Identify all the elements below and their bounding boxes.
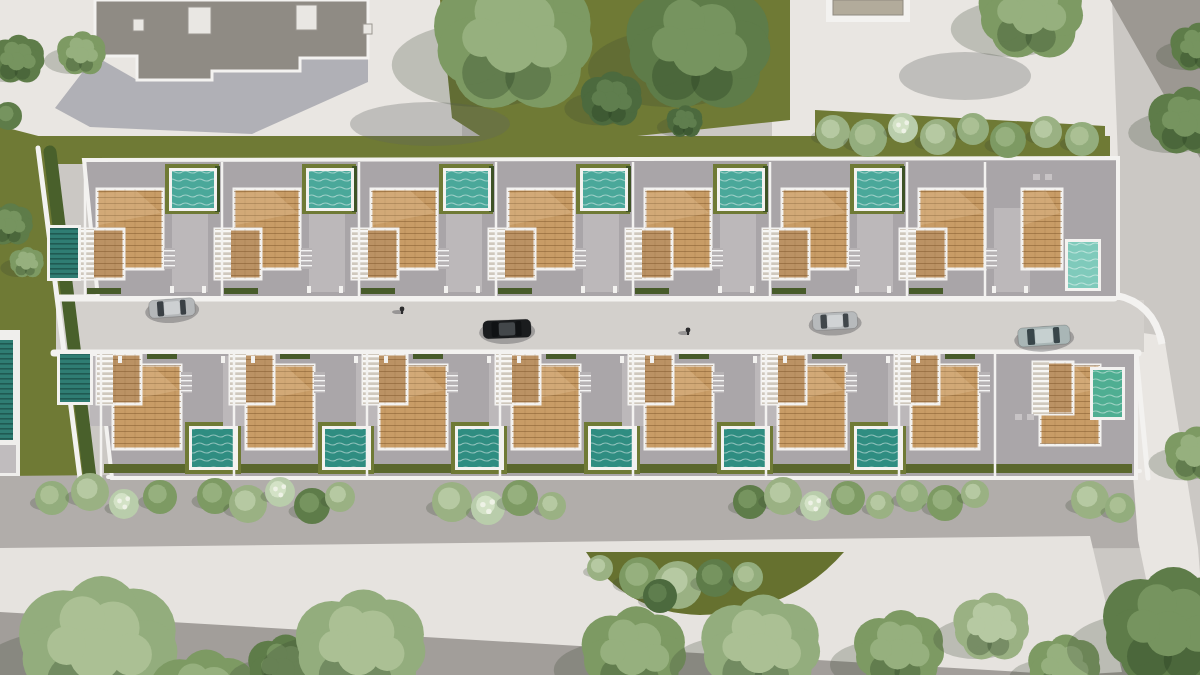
bush-foliage-light <box>625 563 648 586</box>
street-hedge <box>945 354 975 359</box>
bush-foliage-light <box>901 484 919 502</box>
bush-foliage-light <box>965 484 980 499</box>
deck-stairs-treads <box>314 372 325 393</box>
bush-foliage-light <box>77 478 98 499</box>
bush-blossom <box>281 484 286 489</box>
kiosk-roof <box>833 0 903 15</box>
bush-foliage-light <box>738 566 755 583</box>
tree <box>0 35 44 83</box>
gate-pillar <box>487 356 491 363</box>
driveway <box>720 208 756 292</box>
bush-foliage-light <box>1070 127 1089 146</box>
bush-blossom <box>273 487 278 492</box>
swimming-pool-ripples <box>446 171 488 208</box>
bush-blossom <box>480 502 485 507</box>
gate-pillar <box>354 356 358 363</box>
left-house-louver-slats <box>0 340 13 440</box>
bush-blossom <box>896 123 901 128</box>
swimming-pool-ripples <box>591 429 634 467</box>
gate-pillar <box>444 286 448 293</box>
lower-deck-pergola-slats <box>230 354 246 404</box>
gate-pillar <box>339 286 343 293</box>
tree-canopy-light <box>652 26 687 61</box>
car-roof <box>827 315 843 328</box>
gate-pillar <box>476 286 480 293</box>
gate-pillar <box>620 356 624 363</box>
region-middle-road <box>56 300 1144 352</box>
bush-foliage-light <box>438 487 460 509</box>
car-windshield <box>491 322 498 337</box>
car-windshield <box>1027 329 1035 345</box>
pedestrian-legs <box>401 309 403 314</box>
bush-foliage-light <box>1077 486 1098 507</box>
patio-furniture <box>1045 174 1052 180</box>
deck-stairs-treads <box>181 372 192 393</box>
car-rear-window <box>843 313 849 327</box>
bush-foliage-light <box>542 496 557 511</box>
bush-foliage-light <box>648 584 667 603</box>
deck-stairs-treads <box>438 248 449 269</box>
residential-site-plan-rendering <box>0 0 1200 675</box>
bush-foliage-light <box>1035 120 1053 138</box>
swimming-pool-ripples <box>309 171 351 208</box>
deck-stairs-treads <box>447 372 458 393</box>
street-hedge <box>498 288 532 294</box>
driveway <box>172 208 208 292</box>
bush-blossom <box>125 496 130 501</box>
tree-canopy-light <box>967 617 985 635</box>
swimming-pool-ripples <box>172 171 214 208</box>
tree-canopy-light <box>600 639 626 665</box>
bush-foliage-light <box>507 485 527 505</box>
bush-foliage-light <box>40 486 59 505</box>
bush-foliage-light <box>870 495 885 510</box>
scene-root <box>0 0 1200 675</box>
bush-foliage-light <box>1110 497 1127 514</box>
bush-foliage-light <box>836 486 855 505</box>
bush-foliage-light <box>330 486 347 503</box>
bush-blossom <box>808 501 813 506</box>
rooftop-unit <box>133 19 144 31</box>
lower-deck-pergola-slats <box>895 354 911 404</box>
driveway <box>309 208 345 292</box>
bush-foliage-light <box>770 482 791 503</box>
bush-foliage-light <box>932 490 952 510</box>
tree-cast-shadow <box>899 52 1031 100</box>
street-hedge <box>361 288 395 294</box>
gate-pillar <box>202 286 206 293</box>
gate-pillar <box>307 286 311 293</box>
lower-deck-pergola-slats <box>629 354 645 404</box>
gate-pillar <box>750 286 754 293</box>
street-hedge <box>147 354 177 359</box>
lower-deck-pergola-slats <box>97 354 113 404</box>
tree-cast-shadow <box>350 102 510 146</box>
bush-foliage-light <box>821 120 840 139</box>
bush-foliage-light <box>855 124 876 145</box>
tree-canopy-light <box>47 626 86 665</box>
bush-foliage-light <box>202 483 222 503</box>
swimming-pool-ripples <box>325 429 368 467</box>
gate-pillar <box>887 286 891 293</box>
car-rear-window <box>1053 327 1060 343</box>
tree-canopy-light <box>0 52 13 65</box>
end-teal-pergola-louvers <box>60 354 90 402</box>
tree-canopy-light <box>1041 657 1059 675</box>
swimming-pool-ripples <box>1093 370 1122 417</box>
bush-blossom <box>278 493 283 498</box>
gate-pillar <box>221 356 225 363</box>
tree <box>1128 87 1200 154</box>
bush-foliage-light <box>148 485 167 504</box>
street-hedge <box>87 288 121 294</box>
street-hedge <box>280 354 310 359</box>
gate-pillar <box>855 286 859 293</box>
car-roof <box>164 301 181 315</box>
tree-canopy-light <box>16 258 24 266</box>
end-teal-pergola-louvers <box>50 228 78 278</box>
gate-pillar <box>916 356 920 363</box>
bush-foliage-light <box>702 564 723 585</box>
bush-foliage-light <box>925 124 945 144</box>
tree-canopy-light <box>462 18 501 57</box>
tree-canopy-light <box>870 639 892 661</box>
deck-stairs-treads <box>580 372 591 393</box>
bush-blossom <box>816 498 821 503</box>
deck-stairs-treads <box>712 248 723 269</box>
left-house-terrace <box>0 445 16 473</box>
gate-pillar <box>613 286 617 293</box>
rooftop-unit <box>188 7 211 34</box>
gate-pillar <box>783 356 787 363</box>
gate-pillar <box>886 356 890 363</box>
gate-pillar <box>118 356 122 363</box>
tree-canopy-light <box>1127 610 1160 643</box>
gate-pillar <box>251 356 255 363</box>
tree-canopy-light <box>1180 40 1193 53</box>
car-windshield <box>157 301 164 316</box>
bush-foliage-light <box>995 127 1015 147</box>
swimming-pool-ripples <box>724 429 767 467</box>
car-roof <box>499 322 516 336</box>
bush-foliage-light <box>591 559 605 573</box>
bush-blossom <box>117 499 122 504</box>
tree-canopy-light <box>319 631 351 663</box>
gate-pillar <box>384 356 388 363</box>
gate-pillar <box>992 286 996 293</box>
aerial-render-stage <box>0 0 1200 675</box>
gate-pillar <box>581 286 585 293</box>
street-hedge <box>546 354 576 359</box>
swimming-pool-ripples <box>857 429 900 467</box>
swimming-pool-ripples <box>857 171 899 208</box>
swimming-pool-ripples <box>1068 242 1098 288</box>
gate-pillar <box>718 286 722 293</box>
swimming-pool-ripples <box>720 171 762 208</box>
deck-stairs-treads <box>846 372 857 393</box>
bush-foliage-light <box>962 117 980 135</box>
lower-deck-pergola-slats <box>762 354 778 404</box>
lower-deck-pergola-slats <box>496 354 512 404</box>
deck-stairs-treads <box>979 372 990 393</box>
bush-blossom <box>813 507 818 512</box>
bush-blossom <box>486 509 491 514</box>
tree-canopy-light <box>673 117 682 126</box>
car-rear-window <box>515 321 521 336</box>
lower-deck-pergola-slats <box>363 354 379 404</box>
deck-stairs-treads <box>575 248 586 269</box>
tree-canopy-light <box>1162 111 1180 129</box>
driveway <box>446 208 482 292</box>
car-rear-window <box>180 300 187 315</box>
street-hedge <box>679 354 709 359</box>
bush-foliage-light <box>738 490 757 509</box>
street-hedge <box>413 354 443 359</box>
car-roof <box>1035 328 1054 343</box>
deck-stairs-treads <box>986 248 997 269</box>
pedestrian-legs <box>687 330 689 335</box>
bush-foliage-light <box>235 490 256 511</box>
swimming-pool-ripples <box>458 429 501 467</box>
bush-blossom <box>490 499 495 504</box>
rooftop-unit <box>363 24 372 34</box>
patio-furniture <box>1027 414 1034 420</box>
gate-pillar <box>753 356 757 363</box>
rooftop-unit <box>296 5 317 30</box>
deck-stairs-treads <box>849 248 860 269</box>
bush-blossom <box>904 120 909 125</box>
swimming-pool-ripples <box>583 171 625 208</box>
street-hedge <box>635 288 669 294</box>
tree-canopy-light <box>1176 446 1191 461</box>
tree <box>951 0 1083 58</box>
deck-stairs-treads <box>713 372 724 393</box>
deck-stairs-treads <box>301 248 312 269</box>
swimming-pool-ripples <box>192 429 235 467</box>
patio-furniture <box>1033 174 1040 180</box>
lower-deck-pergola-slats <box>1033 362 1049 414</box>
gate-pillar <box>650 356 654 363</box>
street-hedge <box>812 354 842 359</box>
driveway <box>583 208 619 292</box>
gate-pillar <box>170 286 174 293</box>
deck-stairs-treads <box>164 248 175 269</box>
bush-blossom <box>901 129 906 134</box>
street-hedge <box>909 288 943 294</box>
tree-canopy-light <box>592 91 607 106</box>
street-hedge <box>224 288 258 294</box>
bush-blossom <box>122 505 127 510</box>
bush-foliage-light <box>299 493 319 513</box>
gate-pillar <box>1024 286 1028 293</box>
tree-canopy-light <box>66 47 78 59</box>
tree-canopy-light <box>722 632 751 661</box>
street-hedge <box>772 288 806 294</box>
driveway <box>857 208 893 292</box>
gate-pillar <box>517 356 521 363</box>
patio-furniture <box>1015 414 1022 420</box>
car-windshield <box>820 314 827 328</box>
